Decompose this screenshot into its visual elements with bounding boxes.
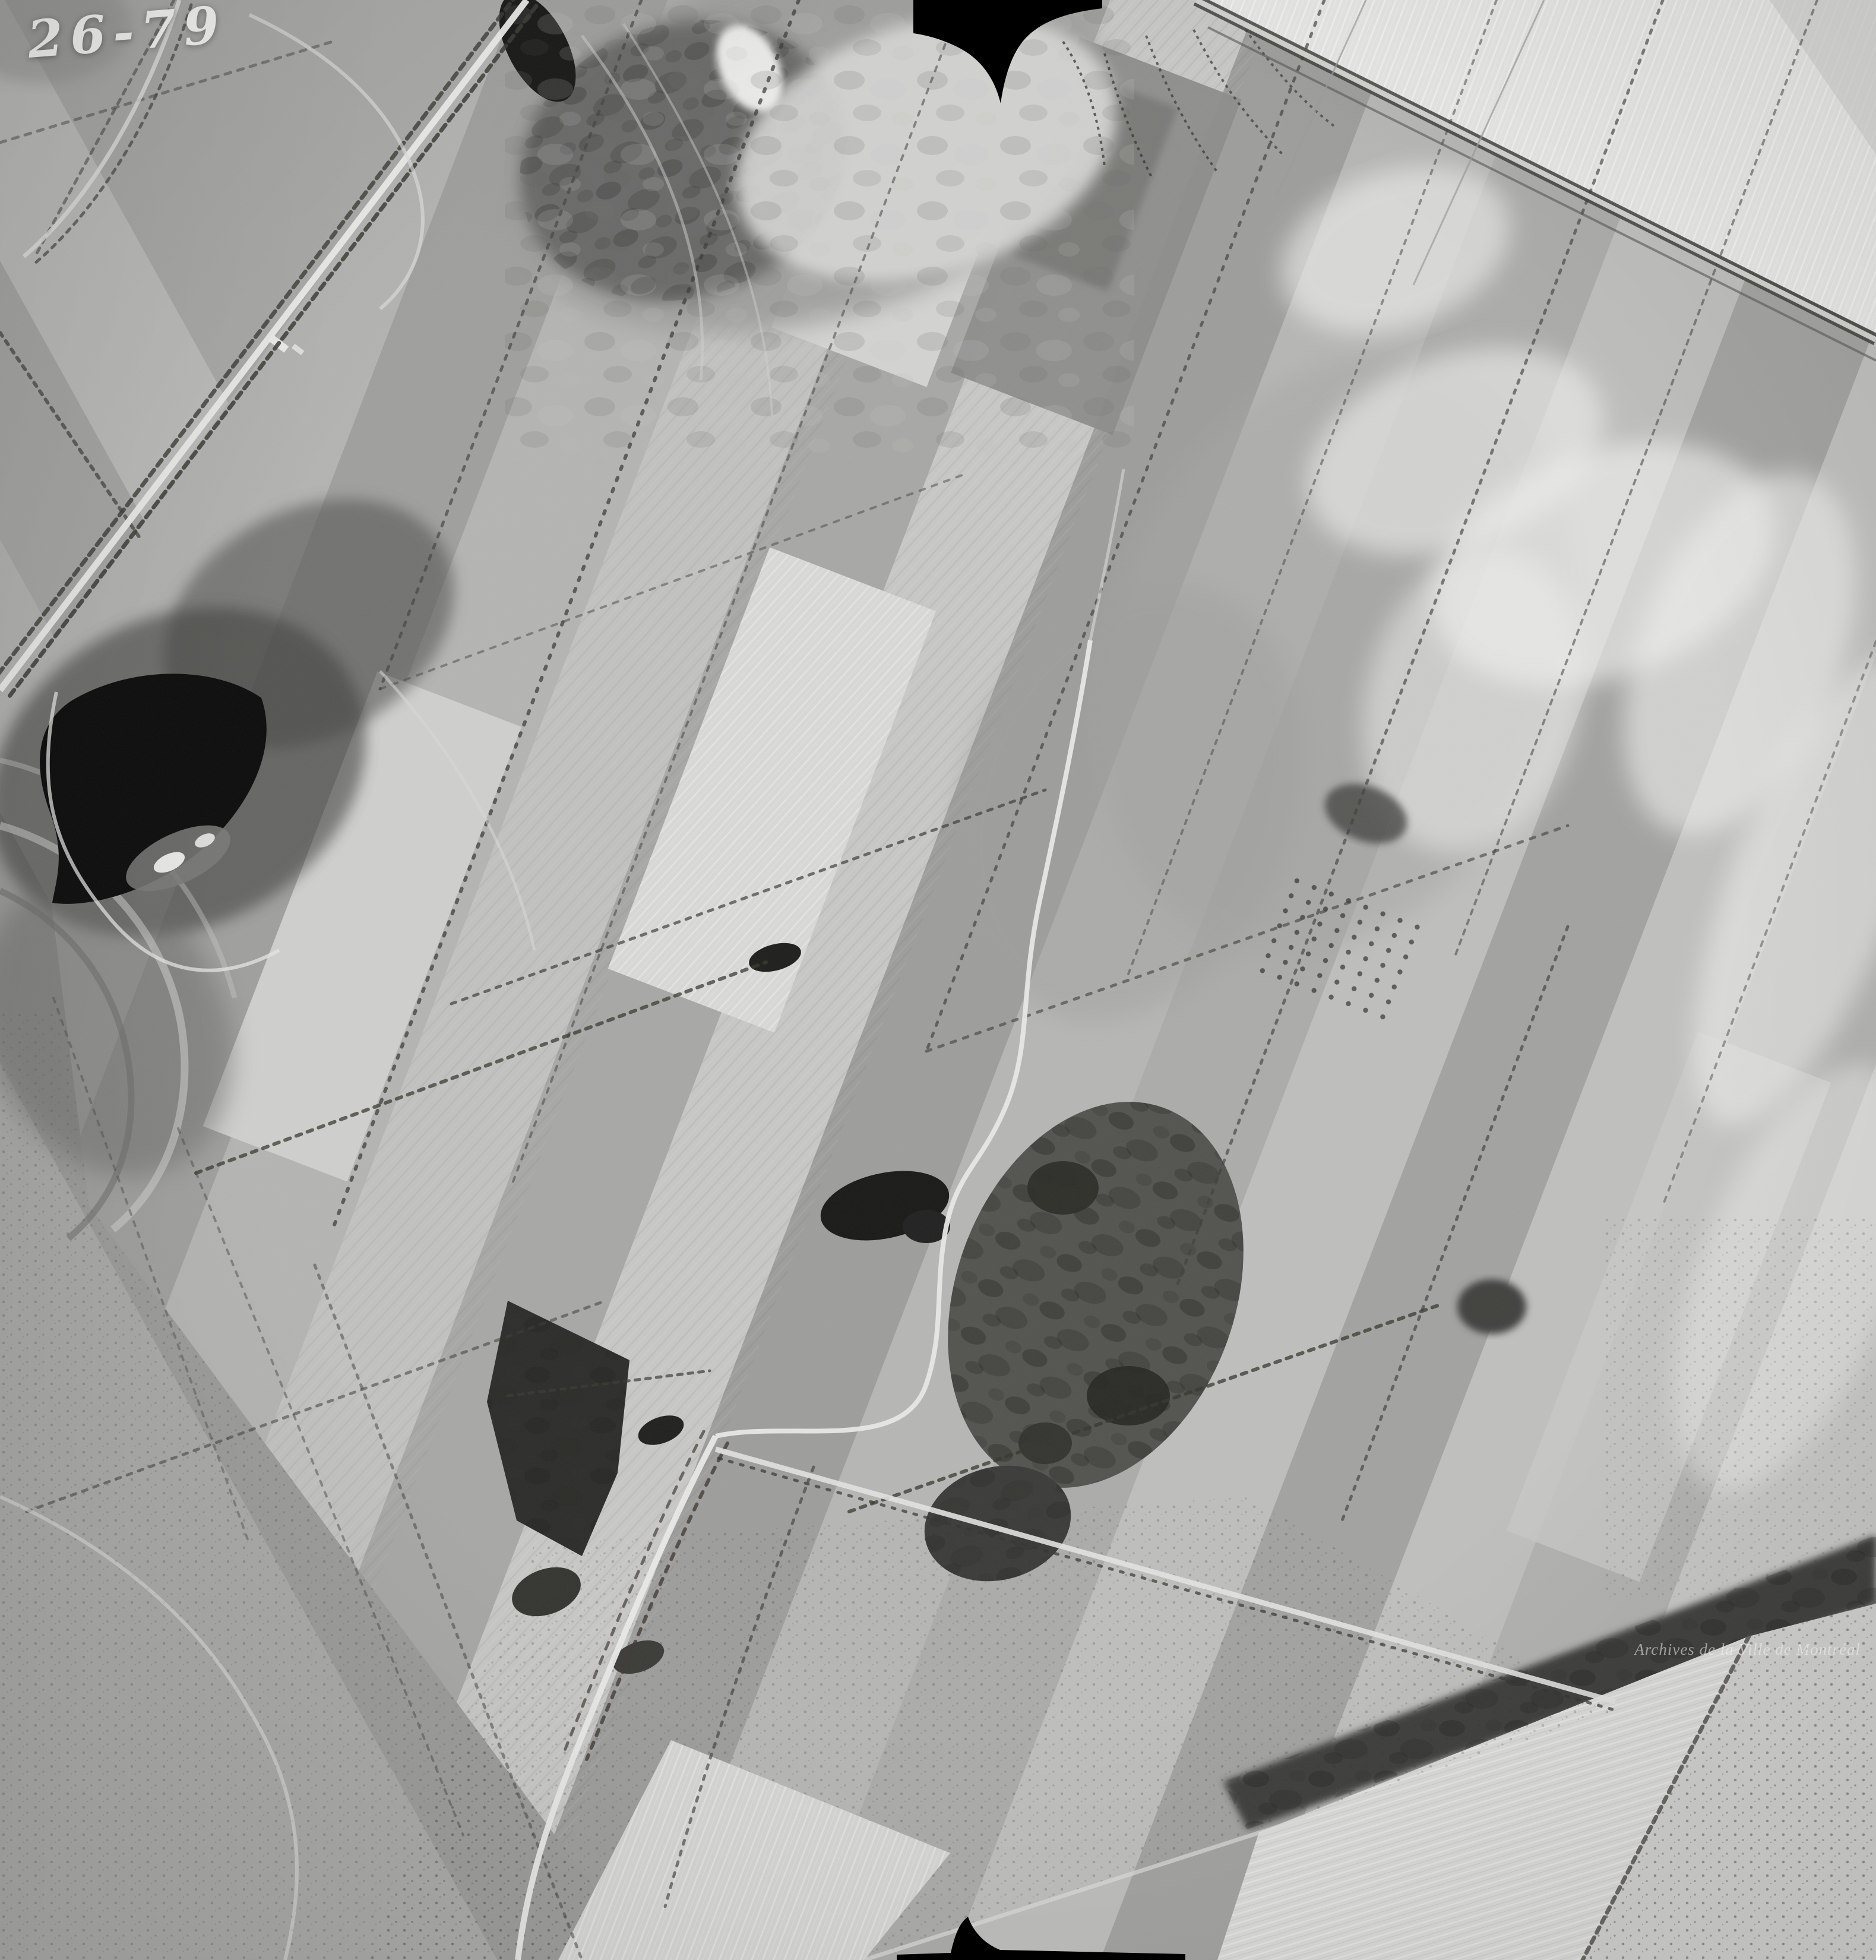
archive-watermark: Archives de la Ville de Montréal [1634,1640,1861,1659]
photo-svg [0,0,1876,1960]
aerial-photo: 26-79 Archives de la Ville de Montréal [0,0,1876,1960]
film-grain-overlay [0,0,1876,1960]
